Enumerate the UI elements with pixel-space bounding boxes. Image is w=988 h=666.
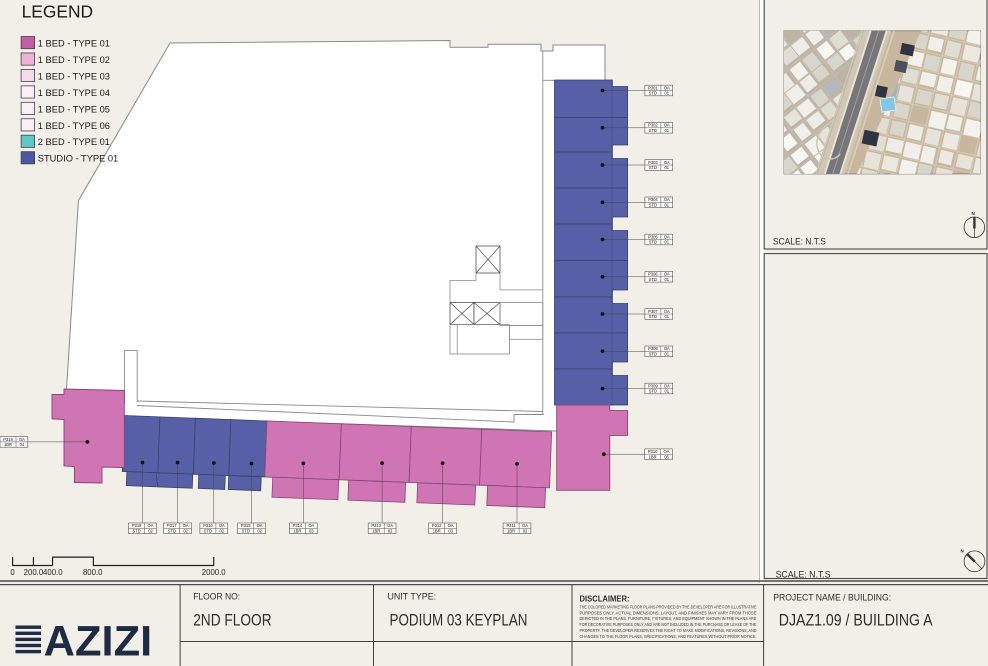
svg-text:2ND FLOOR: 2ND FLOOR: [193, 610, 271, 629]
svg-text:01: 01: [665, 128, 670, 133]
svg-text:OA: OA: [664, 85, 670, 90]
svg-text:OA: OA: [522, 523, 528, 528]
svg-text:01: 01: [665, 389, 670, 394]
svg-text:1 BED - TYPE 06: 1 BED - TYPE 06: [38, 121, 110, 131]
svg-text:P306: P306: [648, 272, 658, 277]
svg-text:SCALE: N.T.S: SCALE: N.T.S: [773, 236, 826, 247]
svg-text:STD: STD: [649, 165, 657, 170]
svg-text:PROPERTY. THE DEVELOPER RESERV: PROPERTY. THE DEVELOPER RESERVES THE RIG…: [580, 628, 757, 633]
svg-text:PROJECT NAME / BUILDING:: PROJECT NAME / BUILDING:: [773, 593, 891, 603]
svg-text:2000.0: 2000.0: [202, 568, 227, 577]
svg-text:STUDIO - TYPE 01: STUDIO - TYPE 01: [38, 154, 118, 164]
svg-text:P314: P314: [293, 523, 303, 528]
svg-text:STD: STD: [649, 128, 657, 133]
svg-text:STD: STD: [649, 389, 657, 394]
svg-text:1 BED - TYPE 02: 1 BED - TYPE 02: [38, 55, 110, 65]
svg-text:OA: OA: [664, 234, 670, 239]
svg-text:200.0: 200.0: [24, 568, 44, 577]
svg-text:N: N: [972, 211, 975, 216]
svg-text:DJAZ1.09 / BUILDING A: DJAZ1.09 / BUILDING A: [779, 611, 933, 630]
svg-text:0: 0: [10, 568, 15, 577]
svg-text:STD: STD: [649, 352, 657, 357]
svg-text:02: 02: [523, 529, 528, 534]
svg-text:P302: P302: [648, 123, 658, 128]
svg-text:STD: STD: [242, 529, 250, 534]
svg-text:05: 05: [664, 454, 669, 459]
svg-text:AZIZI: AZIZI: [44, 618, 153, 666]
svg-text:02: 02: [388, 529, 393, 534]
svg-text:02: 02: [148, 529, 153, 534]
svg-text:01: 01: [665, 203, 670, 208]
svg-text:P307: P307: [648, 309, 658, 314]
svg-text:P318: P318: [132, 523, 142, 528]
svg-text:OA: OA: [664, 272, 670, 277]
svg-text:01: 01: [665, 91, 670, 96]
svg-text:P311: P311: [506, 523, 516, 528]
svg-text:02: 02: [257, 529, 262, 534]
svg-text:P310: P310: [648, 449, 658, 454]
svg-text:1 BED - TYPE 05: 1 BED - TYPE 05: [38, 104, 110, 114]
svg-text:1BR: 1BR: [507, 529, 515, 534]
svg-text:STD: STD: [649, 240, 657, 245]
svg-text:800.0: 800.0: [83, 568, 103, 577]
svg-text:P309: P309: [648, 383, 658, 388]
svg-text:OA: OA: [664, 383, 670, 388]
svg-text:P308: P308: [648, 346, 658, 351]
svg-text:P301: P301: [648, 85, 658, 90]
svg-text:400.0: 400.0: [43, 568, 63, 577]
svg-text:STD: STD: [168, 529, 176, 534]
svg-text:OA: OA: [387, 523, 393, 528]
svg-text:UNIT TYPE:: UNIT TYPE:: [388, 591, 437, 601]
svg-text:P319: P319: [3, 437, 13, 442]
svg-text:P312: P312: [432, 523, 442, 528]
svg-text:FLOOR NO:: FLOOR NO:: [193, 591, 240, 601]
svg-text:1 BED - TYPE 04: 1 BED - TYPE 04: [38, 88, 110, 98]
svg-text:OA: OA: [664, 309, 670, 314]
svg-text:THE COLORED MARKETING FLOOR PL: THE COLORED MARKETING FLOOR PLANS PROVID…: [580, 604, 757, 609]
svg-text:OA: OA: [664, 123, 670, 128]
svg-text:1BR: 1BR: [433, 529, 441, 534]
svg-text:STD: STD: [649, 314, 657, 319]
svg-text:CHANGES TO THE FLOOR PLANS, SP: CHANGES TO THE FLOOR PLANS, SPECIFICATIO…: [580, 634, 757, 639]
svg-text:OA: OA: [19, 437, 25, 442]
svg-text:STD: STD: [204, 529, 212, 534]
svg-text:04: 04: [20, 442, 25, 447]
svg-text:FOR DECORATIVE PURPOSES ONLY A: FOR DECORATIVE PURPOSES ONLY AND ARE NOT…: [580, 622, 757, 627]
svg-text:P304: P304: [648, 197, 658, 202]
svg-text:1BR: 1BR: [649, 454, 657, 459]
svg-text:PURPOSES ONLY. ACTUAL DIMENSIO: PURPOSES ONLY. ACTUAL DIMENSIONS, LAYOUT…: [580, 610, 757, 615]
svg-text:P313: P313: [371, 523, 381, 528]
svg-text:STD: STD: [649, 91, 657, 96]
svg-text:OA: OA: [183, 523, 189, 528]
svg-text:STD: STD: [649, 277, 657, 282]
svg-text:02: 02: [220, 529, 225, 534]
svg-text:03: 03: [309, 529, 314, 534]
svg-text:OA: OA: [664, 449, 670, 454]
svg-text:OA: OA: [448, 523, 454, 528]
svg-text:OA: OA: [148, 523, 154, 528]
svg-text:1 BED - TYPE 03: 1 BED - TYPE 03: [38, 71, 110, 81]
svg-text:OA: OA: [664, 197, 670, 202]
svg-text:P303: P303: [648, 160, 658, 165]
svg-text:OA: OA: [664, 160, 670, 165]
svg-text:P305: P305: [648, 234, 658, 239]
svg-text:P316: P316: [203, 523, 213, 528]
svg-text:DEPICTED IN THE PLANS. FURNITU: DEPICTED IN THE PLANS. FURNITURE, FIXTUR…: [580, 616, 757, 621]
svg-text:DISCLAIMER:: DISCLAIMER:: [580, 593, 630, 603]
svg-text:01: 01: [665, 165, 670, 170]
svg-text:1BR: 1BR: [4, 442, 12, 447]
svg-text:OA: OA: [219, 523, 225, 528]
svg-text:02: 02: [183, 529, 188, 534]
svg-text:N: N: [961, 549, 964, 554]
svg-text:01: 01: [665, 240, 670, 245]
svg-text:OA: OA: [257, 523, 263, 528]
svg-text:01: 01: [665, 277, 670, 282]
svg-text:01: 01: [665, 314, 670, 319]
svg-text:OA: OA: [308, 523, 314, 528]
svg-text:P317: P317: [167, 523, 177, 528]
svg-text:01: 01: [665, 352, 670, 357]
svg-text:SCALE: N.T.S: SCALE: N.T.S: [776, 569, 831, 580]
svg-text:STD: STD: [133, 529, 141, 534]
svg-text:1 BED - TYPE 01: 1 BED - TYPE 01: [38, 39, 110, 49]
svg-text:STD: STD: [649, 203, 657, 208]
svg-text:1BR: 1BR: [372, 529, 380, 534]
svg-text:2 BED - TYPE 01: 2 BED - TYPE 01: [38, 137, 110, 147]
svg-text:OA: OA: [664, 346, 670, 351]
svg-text:LEGEND: LEGEND: [22, 1, 94, 21]
svg-text:P315: P315: [241, 523, 251, 528]
svg-text:03: 03: [448, 529, 453, 534]
svg-text:PODIUM 03 KEYPLAN: PODIUM 03 KEYPLAN: [390, 610, 528, 629]
svg-text:1BR: 1BR: [293, 529, 301, 534]
